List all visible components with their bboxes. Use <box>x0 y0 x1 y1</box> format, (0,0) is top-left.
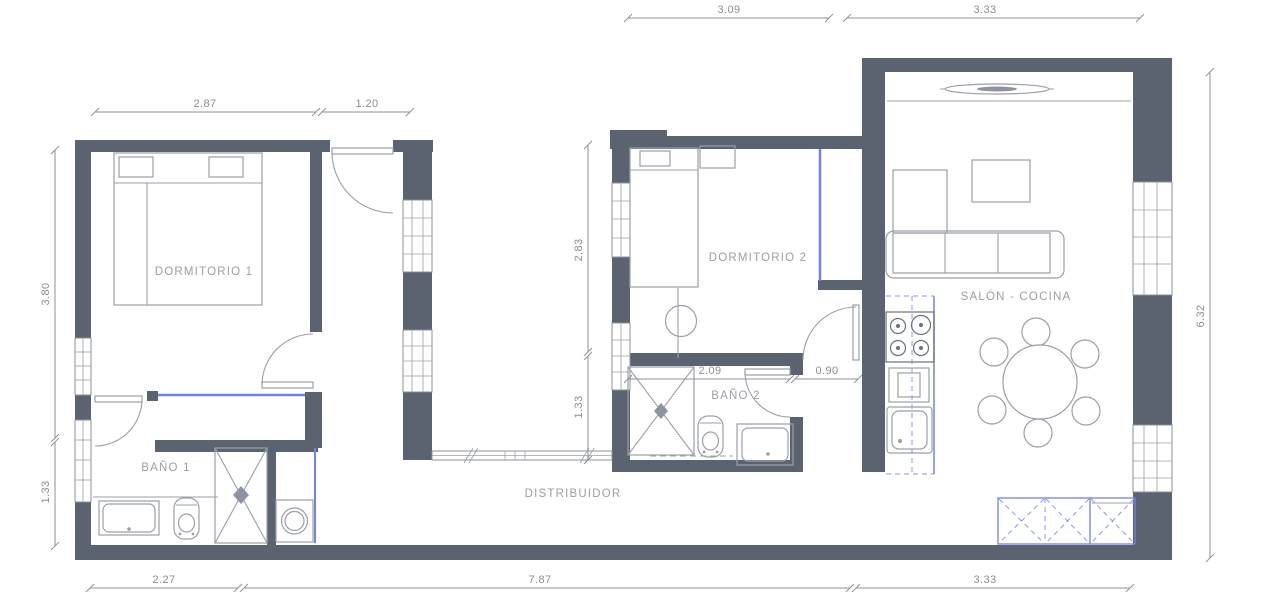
dim-text: 3.80 <box>40 282 52 305</box>
shower-icon <box>215 448 267 543</box>
label-distribuidor: DISTRIBUIDOR <box>525 488 622 500</box>
washing-machine-icon <box>276 500 313 542</box>
dim-text: 6.32 <box>1195 304 1207 327</box>
bathroom2-sink-icon <box>737 424 793 465</box>
toilet2-icon <box>698 416 723 457</box>
entry-door-icon <box>332 148 393 213</box>
window-icon <box>1133 425 1172 492</box>
labels-layer: DORMITORIO 1 BAÑO 1 DORMITORIO 2 BAÑO 2 … <box>141 252 1071 500</box>
coffee-table-icon <box>972 160 1030 202</box>
window-icon <box>612 183 630 257</box>
dim-dorm2-height: 2.83 <box>573 141 592 356</box>
dorm1-door-icon <box>262 334 313 388</box>
dim-salon-height: 6.32 <box>1195 68 1214 562</box>
dorm2-door-icon <box>803 305 859 360</box>
bed2-icon <box>630 146 735 287</box>
shower2-icon <box>628 367 694 455</box>
label-salon-cocina: SALÓN - COCINA <box>961 290 1072 303</box>
window-icon <box>403 330 432 392</box>
window-icon <box>75 338 91 395</box>
dim-text: 2.27 <box>152 574 175 586</box>
floor-plan-svg: 3.09 3.33 2.87 1.20 3.80 <box>0 0 1262 605</box>
dim-text: 2.83 <box>573 238 585 261</box>
floor-plan-page: 3.09 3.33 2.87 1.20 3.80 <box>0 0 1262 605</box>
desk-chair-icon <box>666 288 697 358</box>
kitchen-counter-icon <box>886 296 934 474</box>
banio1-door-icon <box>95 396 142 446</box>
dim-text: 0.90 <box>815 365 838 377</box>
dining-table-icon <box>978 318 1100 447</box>
dim-corridor-bottom-width: 7.87 <box>240 574 854 592</box>
glazed-corridor-window-icon <box>432 448 612 463</box>
dim-text: 2.09 <box>698 365 721 377</box>
dim-text: 3.09 <box>717 4 740 16</box>
dim-salon-bottom-width: 3.33 <box>852 574 1134 592</box>
sofa-icon <box>886 170 1064 278</box>
dim-banio2-height: 1.33 <box>573 352 592 464</box>
dim-text: 1.20 <box>355 98 378 110</box>
dim-text: 3.33 <box>973 4 996 16</box>
base-cabinets-icon <box>998 498 1135 544</box>
walls-layer <box>75 58 1172 560</box>
dim-banio1-height: 1.33 <box>40 438 59 550</box>
dim-dorm1-height: 3.80 <box>40 146 59 442</box>
dim-dorm1-width: 2.87 <box>91 98 320 116</box>
dim-text: 1.33 <box>40 480 52 503</box>
dim-text: 3.33 <box>973 574 996 586</box>
kitchen-sink-icon <box>887 407 932 453</box>
oven-icon <box>889 368 929 402</box>
window-icon <box>1133 182 1172 295</box>
dim-banio1-bottom-width: 2.27 <box>86 574 242 592</box>
window-icon <box>75 420 91 502</box>
stove-icon <box>886 312 934 362</box>
dim-dorm2-top-width: 3.09 <box>624 4 833 22</box>
label-dormitorio1: DORMITORIO 1 <box>155 266 254 278</box>
label-dormitorio2: DORMITORIO 2 <box>709 252 808 264</box>
label-banio1: BAÑO 1 <box>141 461 190 474</box>
dim-text: 7.87 <box>528 574 551 586</box>
dim-entry-width: 1.20 <box>318 98 414 116</box>
dim-text: 2.87 <box>193 98 216 110</box>
label-banio2: BAÑO 2 <box>711 389 760 402</box>
toilet-icon <box>174 498 199 539</box>
dim-text: 1.33 <box>573 395 585 418</box>
bed-icon <box>114 153 262 305</box>
window-icon <box>403 200 432 272</box>
dim-salon-top-width: 3.33 <box>843 4 1144 22</box>
tv-icon <box>940 84 1054 94</box>
